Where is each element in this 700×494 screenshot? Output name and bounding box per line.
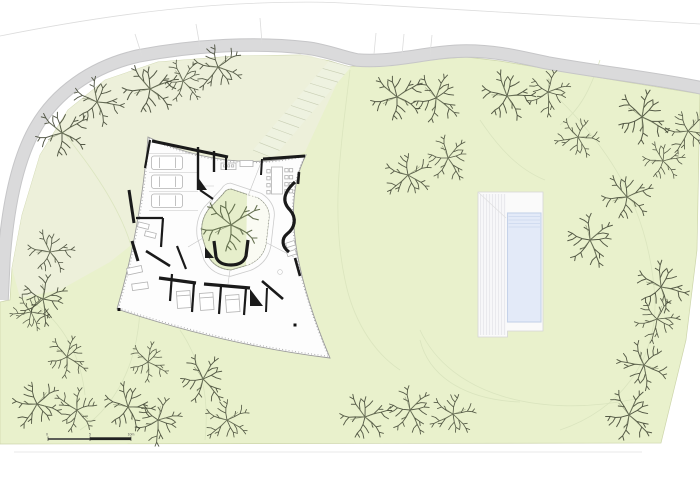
pool-water [508, 213, 542, 322]
scale-label-end: 10m [128, 433, 135, 437]
scale-label-mid: 5 [89, 433, 91, 437]
garage-car [152, 194, 183, 208]
site-plan-canvas: 0 5 10m [0, 0, 700, 494]
scale-bar-segment-1 [48, 438, 90, 440]
pool-wood-decking [480, 194, 506, 335]
garage-car [152, 156, 183, 170]
pool [478, 192, 543, 337]
scale-label-0: 0 [46, 433, 48, 437]
garage-car [152, 175, 183, 189]
site-plan-page: 0 5 10m [0, 0, 700, 494]
scale-bar-segment-2 [90, 437, 131, 440]
